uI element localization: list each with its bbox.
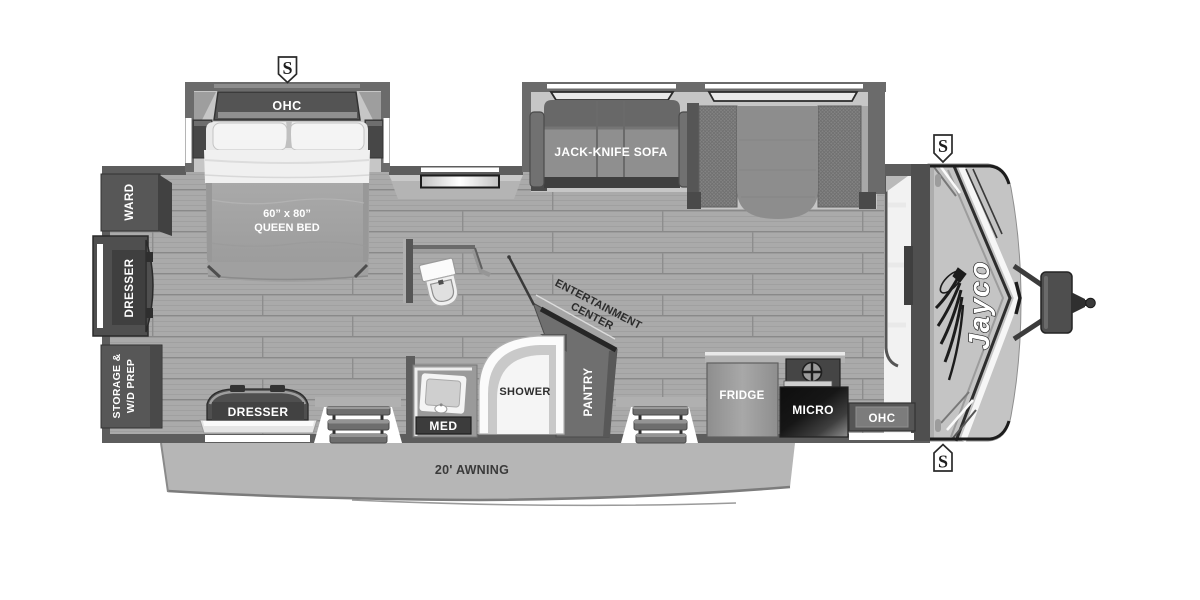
svg-text:OHC: OHC xyxy=(272,99,301,113)
svg-text:S: S xyxy=(938,136,948,156)
svg-text:MICRO: MICRO xyxy=(792,403,834,417)
svg-text:OHC: OHC xyxy=(868,413,895,425)
svg-text:S: S xyxy=(282,58,292,78)
svg-text:PANTRY: PANTRY xyxy=(583,368,595,417)
svg-text:SHOWER: SHOWER xyxy=(499,386,550,398)
svg-text:WARD: WARD xyxy=(124,183,136,220)
svg-text:W/D PREP: W/D PREP xyxy=(125,359,137,413)
svg-text:DRESSER: DRESSER xyxy=(124,258,136,317)
svg-text:Jayco: Jayco xyxy=(964,260,996,350)
svg-text:STORAGE &: STORAGE & xyxy=(111,353,123,418)
svg-text:MED: MED xyxy=(429,419,457,433)
svg-text:20' AWNING: 20' AWNING xyxy=(435,463,509,477)
svg-text:JACK-KNIFE SOFA: JACK-KNIFE SOFA xyxy=(554,145,667,159)
svg-text:DRESSER: DRESSER xyxy=(228,405,289,419)
svg-text:60” x 80”: 60” x 80” xyxy=(263,208,311,220)
svg-text:QUEEN BED: QUEEN BED xyxy=(254,222,319,234)
svg-text:FRIDGE: FRIDGE xyxy=(719,390,764,402)
svg-text:S: S xyxy=(938,452,948,472)
